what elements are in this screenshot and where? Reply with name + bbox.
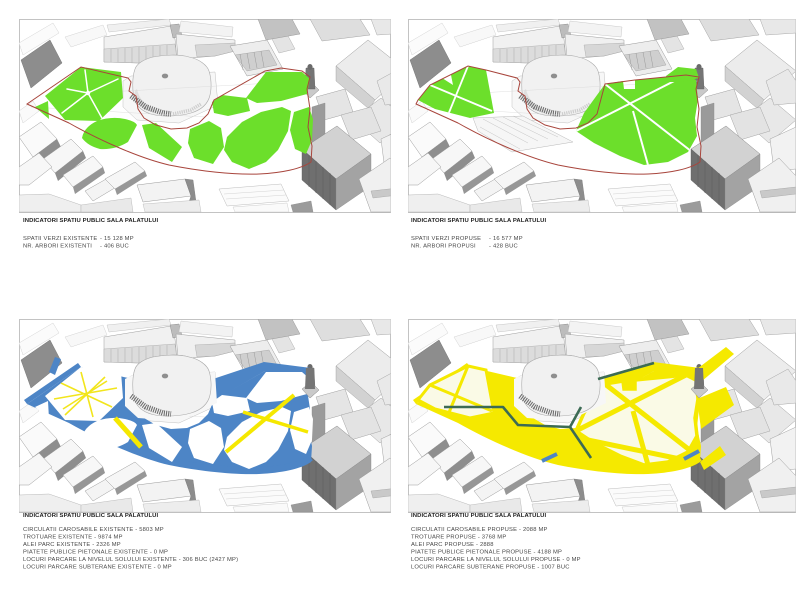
svg-text:LOCURI PARCARE SUBTERANE PROPU: LOCURI PARCARE SUBTERANE PROPUSE - 1007 … bbox=[411, 565, 570, 571]
svg-text:INDICATORI SPATIU PUBLIC SALA: INDICATORI SPATIU PUBLIC SALA PALATULUI bbox=[411, 218, 546, 224]
svg-text:LOCURI PARCARE SUBTERANE EXIST: LOCURI PARCARE SUBTERANE EXISTENTE - 0 M… bbox=[23, 565, 172, 571]
svg-text:SPATII VERZI EXISTENTE- 15 128: SPATII VERZI EXISTENTE- 15 128 MP bbox=[23, 236, 134, 242]
svg-text:NR. ARBORI PROPUSI- 428 BUC: NR. ARBORI PROPUSI- 428 BUC bbox=[411, 244, 518, 250]
svg-text:LOCURI PARCARE LA NIVELUL SOLU: LOCURI PARCARE LA NIVELUL SOLULUI EXISTE… bbox=[23, 557, 238, 563]
svg-text:LOCURI PARCARE LA NIVELUL SOLU: LOCURI PARCARE LA NIVELUL SOLULUI PROPUS… bbox=[411, 557, 581, 563]
svg-text:ALEI PARC EXISTENTE - 2326 MP: ALEI PARC EXISTENTE - 2326 MP bbox=[23, 542, 121, 548]
svg-text:PIATETE PUBLICE PIETONALE EXIS: PIATETE PUBLICE PIETONALE EXISTENTE - 0 … bbox=[23, 550, 168, 556]
svg-text:INDICATORI SPATIU PUBLIC SALA: INDICATORI SPATIU PUBLIC SALA PALATULUI bbox=[411, 513, 546, 519]
svg-text:PIATETE PUBLICE PIETONALE PROP: PIATETE PUBLICE PIETONALE PROPUSE - 4188… bbox=[411, 550, 562, 556]
svg-text:TROTUARE PROPUSE - 3768 MP: TROTUARE PROPUSE - 3768 MP bbox=[411, 535, 506, 541]
svg-text:INDICATORI SPATIU PUBLIC SALA: INDICATORI SPATIU PUBLIC SALA PALATULUI bbox=[23, 218, 158, 224]
svg-text:NR. ARBORI EXISTENTI- 406 BUC: NR. ARBORI EXISTENTI- 406 BUC bbox=[23, 244, 129, 250]
svg-text:INDICATORI SPATIU PUBLIC SALA: INDICATORI SPATIU PUBLIC SALA PALATULUI bbox=[23, 513, 158, 519]
svg-text:TROTUARE EXISTENTE - 9874 MP: TROTUARE EXISTENTE - 9874 MP bbox=[23, 535, 123, 541]
svg-text:SPATII VERZI PROPUSE- 16 577 M: SPATII VERZI PROPUSE- 16 577 MP bbox=[411, 236, 523, 242]
svg-text:CIRCULATII CAROSABILE EXISTENT: CIRCULATII CAROSABILE EXISTENTE - 5803 M… bbox=[23, 527, 164, 533]
svg-text:CIRCULATII CAROSABILE PROPUSE: CIRCULATII CAROSABILE PROPUSE - 2088 MP bbox=[411, 527, 548, 533]
svg-text:ALEI PARC PROPUSE - 2888: ALEI PARC PROPUSE - 2888 bbox=[411, 542, 494, 548]
